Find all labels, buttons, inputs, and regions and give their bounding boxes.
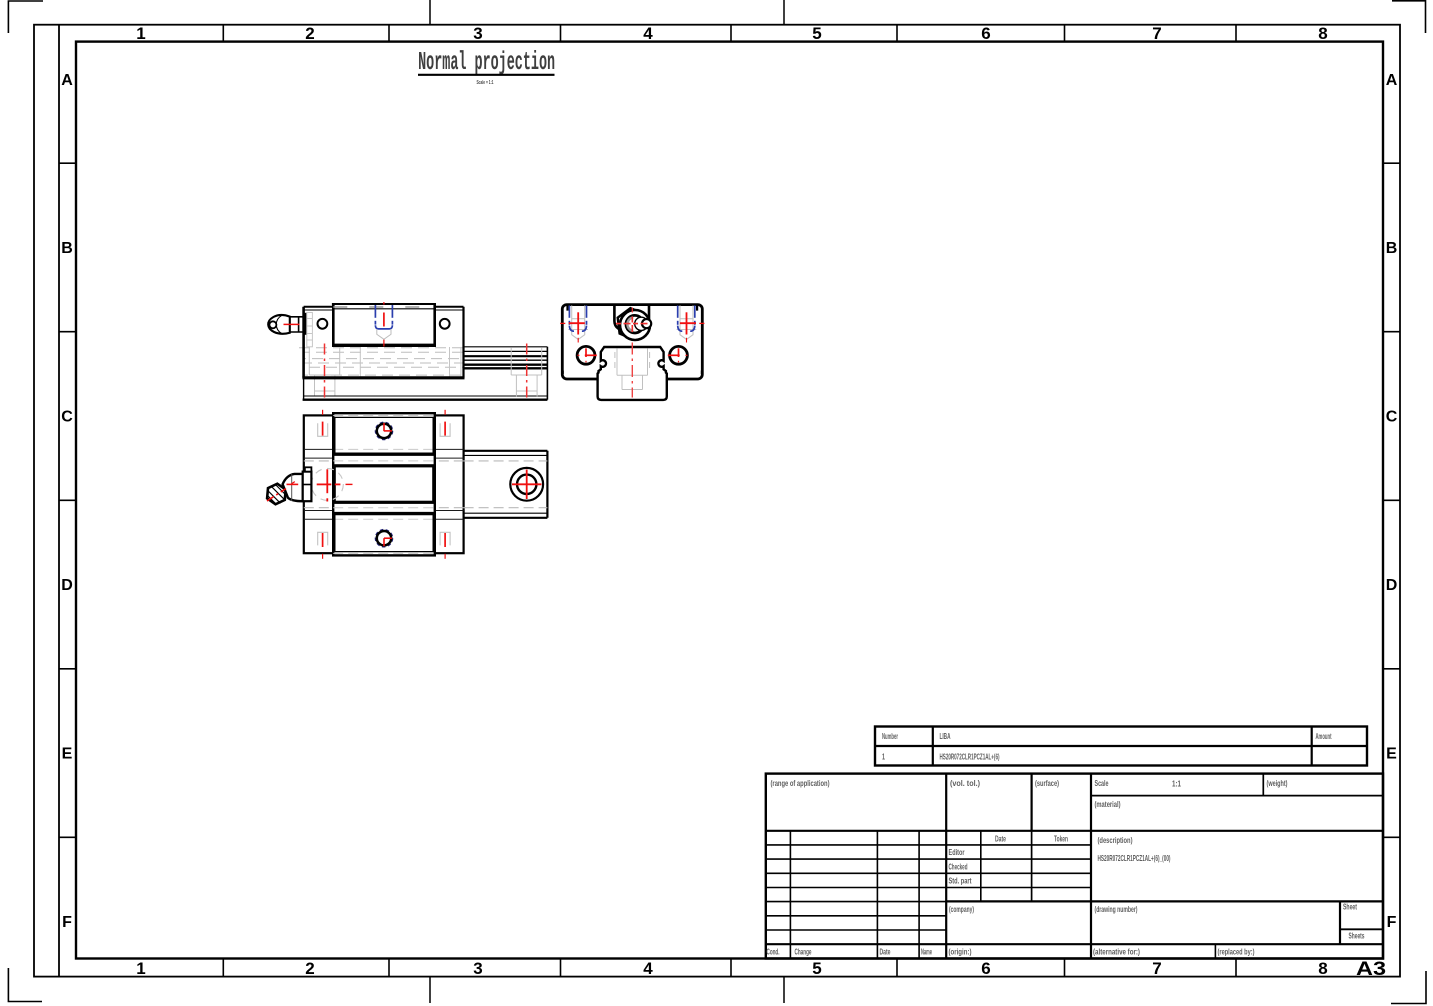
svg-text:(replaced by:): (replaced by:) bbox=[1218, 947, 1255, 957]
svg-text:4: 4 bbox=[643, 959, 653, 978]
svg-text:4: 4 bbox=[643, 24, 653, 43]
svg-text:1: 1 bbox=[136, 959, 145, 978]
svg-text:Name: Name bbox=[921, 947, 932, 957]
svg-text:(range of application): (range of application) bbox=[771, 778, 830, 788]
svg-text:3: 3 bbox=[473, 24, 482, 43]
svg-text:Scale: Scale bbox=[1095, 778, 1109, 788]
svg-text:(alternative for:): (alternative for:) bbox=[1093, 947, 1140, 957]
svg-text:6: 6 bbox=[981, 959, 990, 978]
svg-text:Sheet: Sheet bbox=[1343, 902, 1357, 912]
svg-text:2: 2 bbox=[305, 24, 314, 43]
svg-text:E: E bbox=[62, 746, 73, 763]
svg-text:Amount: Amount bbox=[1316, 731, 1332, 741]
svg-text:Date: Date bbox=[995, 834, 1006, 844]
svg-text:1: 1 bbox=[882, 752, 885, 762]
svg-text:D: D bbox=[61, 577, 73, 594]
svg-text:B: B bbox=[61, 240, 73, 257]
svg-text:D: D bbox=[1386, 577, 1398, 594]
svg-text:5: 5 bbox=[812, 24, 821, 43]
svg-text:HS20R072CLR1PCZ1AL+(6)_(00): HS20R072CLR1PCZ1AL+(6)_(00) bbox=[1098, 853, 1171, 863]
svg-text:HS20R072CLR1PCZ1AL+(6): HS20R072CLR1PCZ1AL+(6) bbox=[940, 752, 1000, 762]
svg-text:F: F bbox=[1387, 914, 1397, 931]
svg-text:1: 1 bbox=[136, 24, 145, 43]
svg-text:B: B bbox=[1386, 240, 1398, 257]
svg-text:(drawing number): (drawing number) bbox=[1095, 904, 1138, 914]
svg-text:Sheets: Sheets bbox=[1349, 931, 1365, 941]
svg-text:7: 7 bbox=[1152, 24, 1161, 43]
svg-text:E: E bbox=[1386, 746, 1397, 763]
svg-text:Scale = 1:1: Scale = 1:1 bbox=[477, 80, 494, 86]
svg-text:Cond.: Cond. bbox=[767, 947, 780, 957]
svg-text:5: 5 bbox=[812, 959, 821, 978]
svg-text:Number: Number bbox=[882, 731, 898, 741]
svg-text:6: 6 bbox=[981, 24, 990, 43]
svg-text:(company): (company) bbox=[949, 904, 974, 914]
svg-text:3: 3 bbox=[473, 959, 482, 978]
svg-text:7: 7 bbox=[1152, 959, 1161, 978]
svg-text:(surface): (surface) bbox=[1035, 778, 1059, 788]
svg-text:Editor: Editor bbox=[949, 847, 965, 857]
svg-text:1:1: 1:1 bbox=[1172, 779, 1181, 789]
svg-text:A: A bbox=[61, 72, 73, 89]
svg-text:8: 8 bbox=[1318, 24, 1327, 43]
svg-text:F: F bbox=[62, 914, 72, 931]
svg-text:(description): (description) bbox=[1098, 835, 1133, 845]
svg-text:C: C bbox=[61, 409, 73, 426]
svg-text:Change: Change bbox=[795, 947, 812, 957]
svg-text:(material): (material) bbox=[1095, 799, 1121, 809]
svg-text:A: A bbox=[1386, 72, 1398, 89]
svg-text:Normal projection: Normal projection bbox=[418, 47, 555, 77]
svg-text:LIBA: LIBA bbox=[940, 731, 951, 741]
svg-text:8: 8 bbox=[1318, 959, 1327, 978]
svg-text:C: C bbox=[1386, 409, 1398, 426]
svg-text:(vol. tol.): (vol. tol.) bbox=[950, 778, 980, 788]
svg-text:Std. part: Std. part bbox=[949, 876, 972, 886]
svg-text:Checked: Checked bbox=[949, 861, 968, 871]
svg-text:A3: A3 bbox=[1356, 959, 1386, 980]
svg-text:(origin:): (origin:) bbox=[949, 947, 972, 957]
svg-text:Token: Token bbox=[1054, 834, 1068, 844]
svg-text:Date: Date bbox=[880, 947, 891, 957]
svg-text:(weight): (weight) bbox=[1267, 778, 1288, 788]
svg-text:2: 2 bbox=[305, 959, 314, 978]
